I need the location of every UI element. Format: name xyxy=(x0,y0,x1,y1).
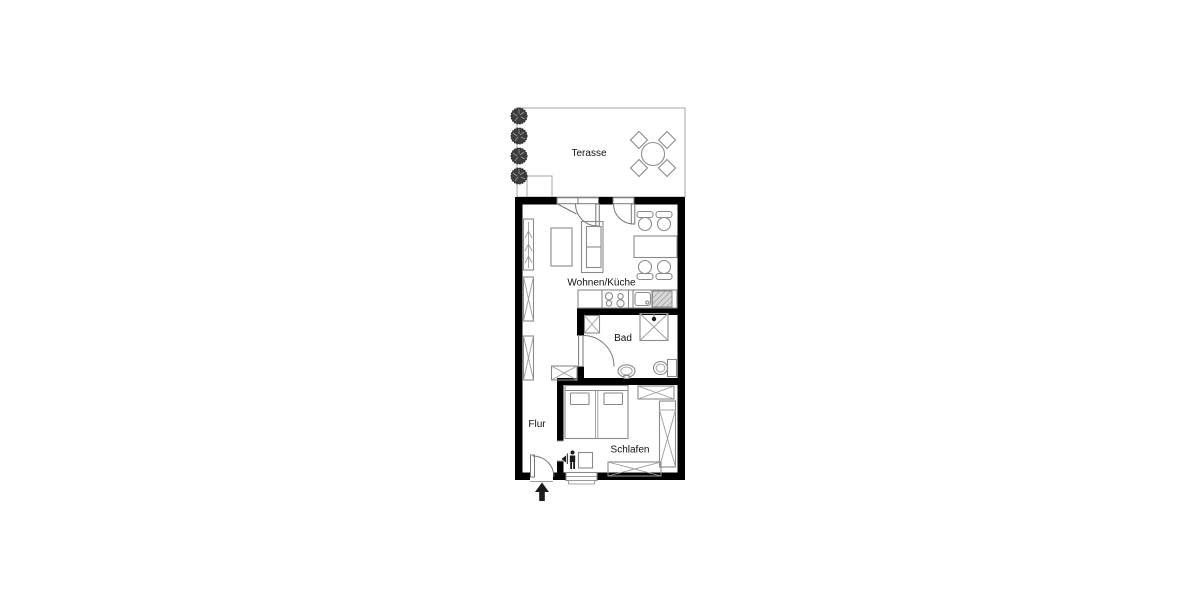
tall-wardrobe-icon xyxy=(660,401,676,467)
room-label-bath: Bad xyxy=(614,333,632,344)
floor-plan-drawing: Terasse xyxy=(0,0,1200,600)
shaft-icon xyxy=(585,316,600,334)
washbasin-icon xyxy=(618,365,635,379)
pillow-icon xyxy=(571,393,590,405)
kitchen-appliance-icon xyxy=(653,291,673,307)
hall-cabinet-icon xyxy=(552,366,578,380)
kitchen-counter xyxy=(578,290,677,308)
coffee-table-icon xyxy=(551,228,572,266)
terrace-doormat xyxy=(527,176,552,197)
room-label-hall: Flur xyxy=(528,419,546,430)
toilet-icon xyxy=(654,360,677,377)
sofa-icon xyxy=(582,222,604,273)
room-label-terrace: Terasse xyxy=(571,148,606,159)
entrance-arrow-icon xyxy=(535,483,549,502)
double-bed-icon xyxy=(565,386,628,439)
bedroom-furniture: Schlafen xyxy=(562,386,676,477)
cooktop-icon xyxy=(605,293,624,307)
hall-area: Flur xyxy=(528,366,577,430)
bush-icons xyxy=(511,108,527,184)
entrance-door xyxy=(530,455,554,482)
scale-figure-icon xyxy=(562,451,576,470)
bath-door xyxy=(579,336,614,367)
round-table-icon xyxy=(642,143,665,166)
room-label-living-kitchen: Wohnen/Küche xyxy=(567,278,636,289)
living-kitchen-furniture: Wohnen/Küche xyxy=(524,212,678,381)
terrace-table-set xyxy=(631,132,676,177)
room-label-bedroom: Schlafen xyxy=(611,445,650,456)
terrace-area: Terasse xyxy=(511,108,685,197)
kitchen-sink-icon xyxy=(635,293,651,306)
shower-icon xyxy=(640,314,668,341)
stand-icon xyxy=(579,453,593,469)
cabinet-icon xyxy=(524,277,534,321)
pillow-icon xyxy=(604,393,623,405)
cabinet-icon xyxy=(524,336,534,380)
patio-door-leaf-ajar xyxy=(558,204,577,214)
dining-table-icon xyxy=(634,236,677,258)
bedroom-window xyxy=(566,473,597,485)
wardrobe-icon xyxy=(638,386,674,399)
bathroom-fixtures: Bad xyxy=(585,314,677,379)
radiator-plant-icon xyxy=(524,219,534,270)
dining-chair-icons xyxy=(637,212,672,280)
floor-plan-page: Terasse xyxy=(0,0,1200,600)
